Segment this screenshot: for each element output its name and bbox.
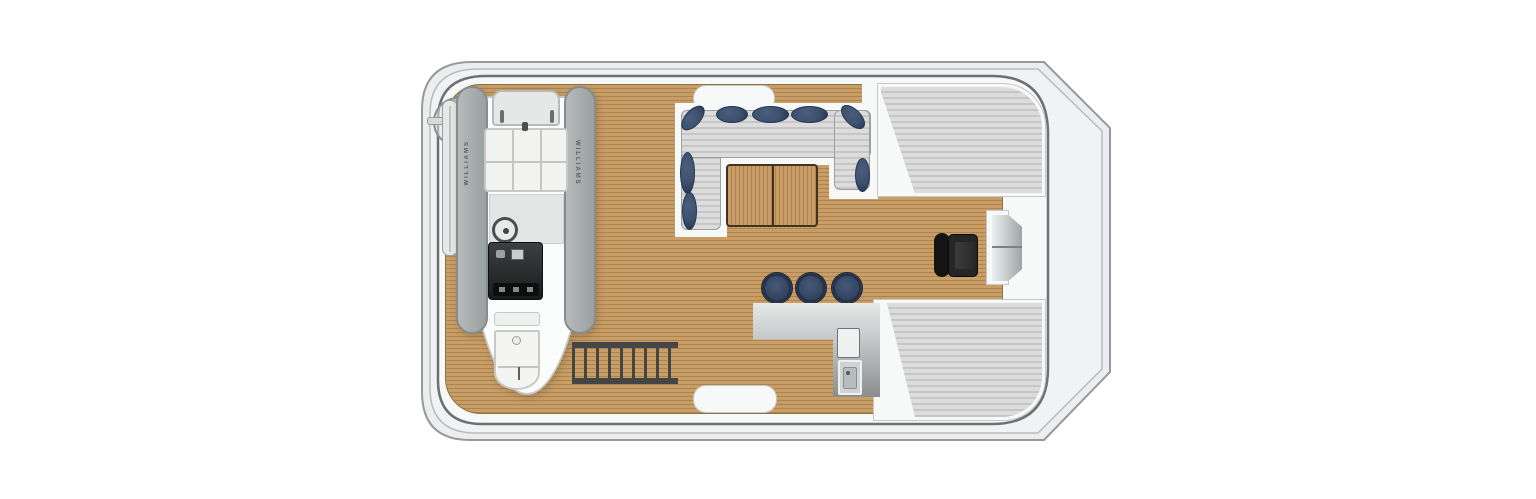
table-leaf-divider xyxy=(772,166,774,225)
tender-brand-left: WILLIAMS xyxy=(464,140,470,186)
bow-hatch-ring xyxy=(512,336,521,345)
sofa-bolster-top-1 xyxy=(716,106,748,123)
tender-brand-right: WILLIAMS xyxy=(574,140,580,186)
console-screen xyxy=(511,249,524,260)
stern-cleat-right xyxy=(550,110,554,123)
boarding-pad-bottom xyxy=(694,386,776,412)
switch-2 xyxy=(513,287,519,292)
tender-stern-platform xyxy=(492,90,560,126)
bow-tick-mark xyxy=(518,367,520,380)
console-switch-panel xyxy=(493,283,539,296)
sofa-bolster-side-left-2 xyxy=(682,192,697,230)
tender: WILLIAMS WILLIAMS xyxy=(440,80,610,410)
bar-stool-2 xyxy=(796,273,826,303)
console-gauge xyxy=(496,250,505,258)
bar-fridge xyxy=(837,328,860,358)
bench-col-divider-1 xyxy=(512,130,514,190)
tender-console xyxy=(488,242,543,300)
dinette-table xyxy=(726,164,818,227)
sink-basin xyxy=(843,367,857,389)
stern-cleat-left xyxy=(500,110,504,123)
sofa-bolster-side-right xyxy=(855,158,870,192)
bar-stool-1 xyxy=(762,273,792,303)
bench-col-divider-2 xyxy=(540,130,542,190)
sofa-bolster-top-3 xyxy=(791,106,828,123)
tender-mid-locker xyxy=(494,312,540,326)
bench-row-divider xyxy=(486,161,566,163)
tender-tube-right xyxy=(564,86,596,334)
sink-faucet xyxy=(846,371,850,375)
chair-seat-face xyxy=(955,242,974,269)
tender-steering-wheel xyxy=(492,217,518,243)
deck-plan-canvas: WILLIAMS WILLIAMS xyxy=(0,0,1536,499)
tender-tube-left xyxy=(456,86,488,334)
tender-bollard xyxy=(522,122,528,131)
tender-bench-seats xyxy=(484,128,568,192)
wheel-hub xyxy=(503,228,509,234)
bar-stool-3 xyxy=(832,273,862,303)
gate-split-line xyxy=(992,246,1022,248)
switch-1 xyxy=(499,287,505,292)
chair-backrest xyxy=(934,233,950,277)
helm-chair xyxy=(930,230,980,280)
sofa-bolster-side-left-1 xyxy=(680,152,695,194)
boarding-gate xyxy=(992,215,1022,281)
sofa-bolster-top-2 xyxy=(752,106,789,123)
switch-3 xyxy=(527,287,533,292)
bar-sink xyxy=(838,360,862,395)
